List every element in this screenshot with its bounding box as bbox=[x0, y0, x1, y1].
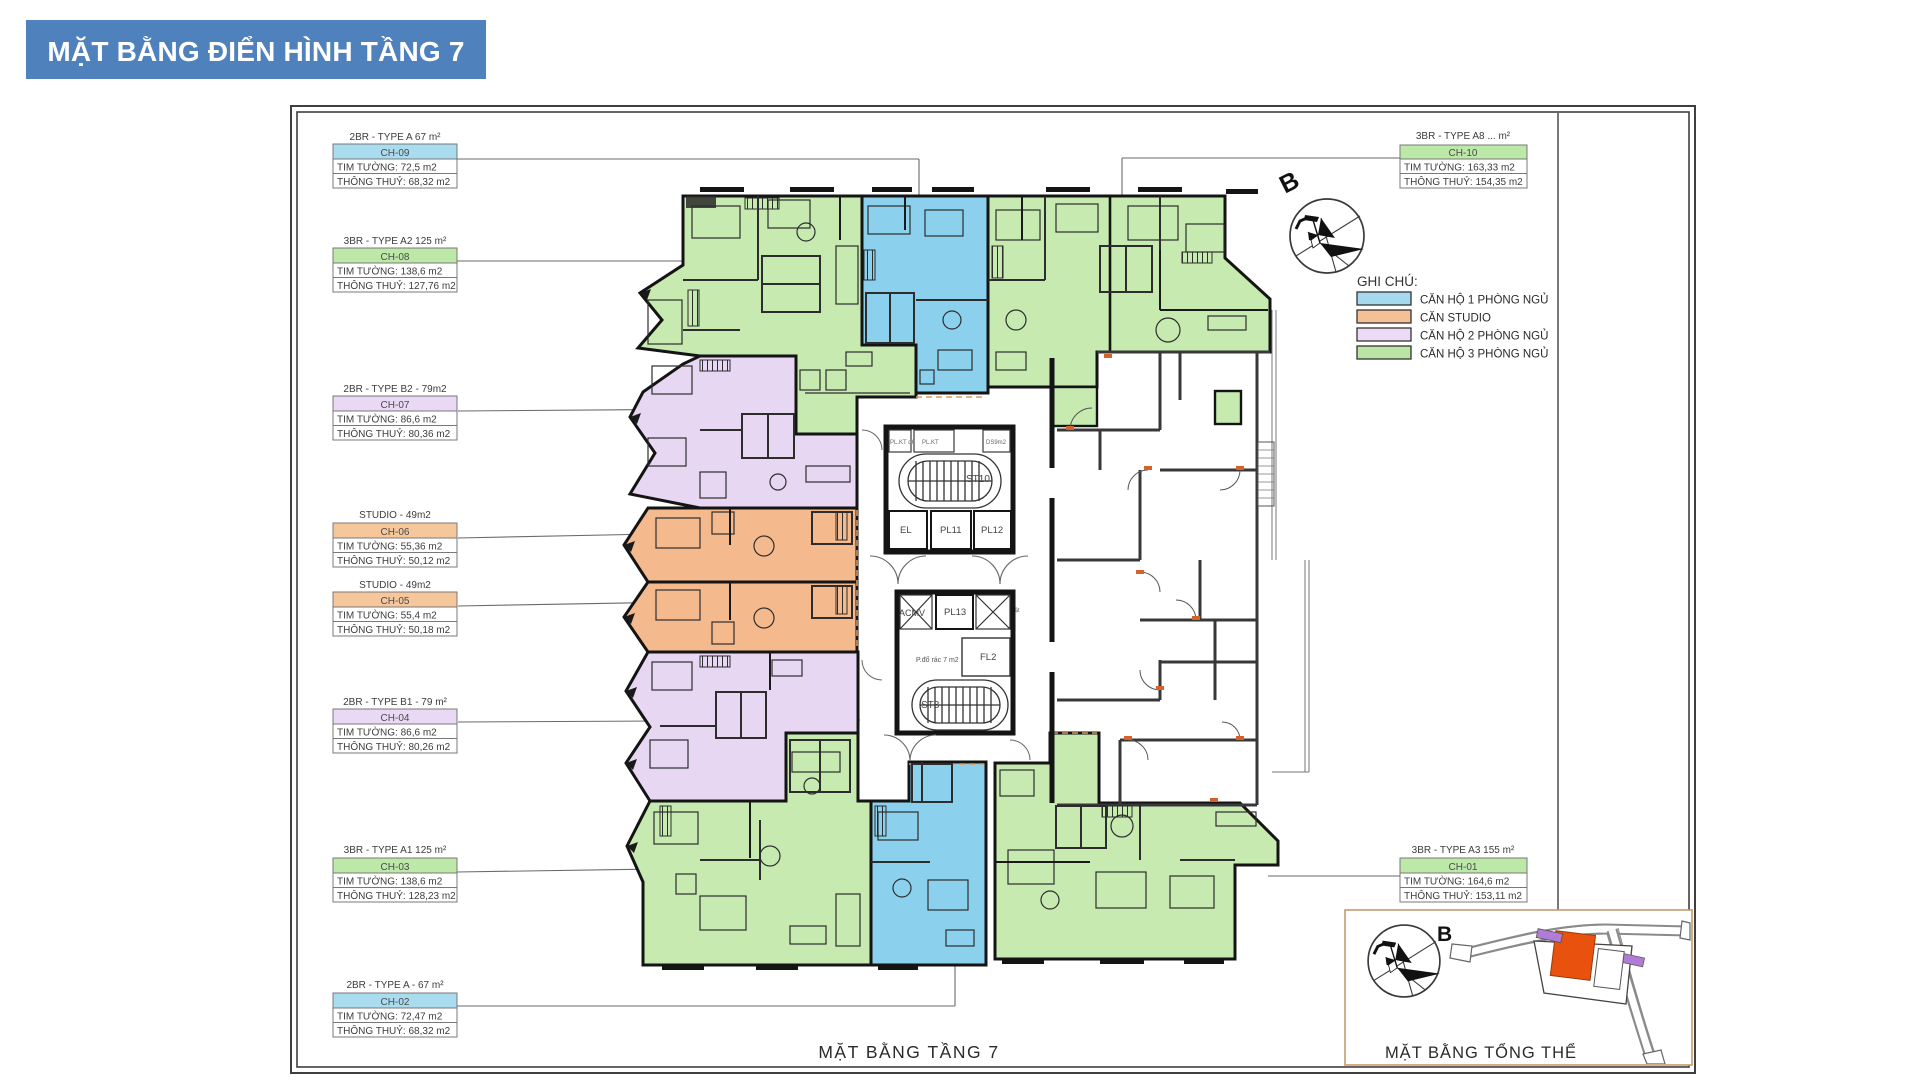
svg-text:TIM TƯỜNG: 138,6 m2: TIM TƯỜNG: 138,6 m2 bbox=[337, 265, 443, 278]
svg-text:PL11: PL11 bbox=[940, 525, 961, 536]
svg-text:3BR - TYPE A8 ... m²: 3BR - TYPE A8 ... m² bbox=[1416, 131, 1511, 142]
svg-text:PL.KT: PL.KT bbox=[922, 440, 939, 446]
svg-text:THÔNG THUỶ: 127,76 m2: THÔNG THUỶ: 127,76 m2 bbox=[337, 279, 456, 292]
svg-text:PL13: PL13 bbox=[944, 607, 966, 618]
svg-text:CH-09: CH-09 bbox=[381, 148, 410, 159]
svg-text:CH-05: CH-05 bbox=[381, 596, 410, 607]
svg-text:THÔNG THUỶ: 80,26 m2: THÔNG THUỶ: 80,26 m2 bbox=[337, 740, 451, 753]
svg-text:THÔNG THUỶ: 153,11 m2: THÔNG THUỶ: 153,11 m2 bbox=[1404, 889, 1522, 902]
svg-text:2BR - TYPE A - 67 m²: 2BR - TYPE A - 67 m² bbox=[346, 980, 444, 991]
svg-text:CH-04: CH-04 bbox=[381, 713, 410, 724]
svg-text:TIM TƯỜNG: 86,6 m2: TIM TƯỜNG: 86,6 m2 bbox=[337, 413, 437, 426]
svg-text:EL: EL bbox=[900, 525, 912, 536]
svg-text:THÔNG THUỶ: 154,35 m2: THÔNG THUỶ: 154,35 m2 bbox=[1404, 175, 1523, 188]
svg-text:ST8: ST8 bbox=[921, 700, 940, 711]
svg-text:GHI CHÚ:: GHI CHÚ: bbox=[1357, 274, 1418, 289]
svg-text:B: B bbox=[1437, 923, 1452, 946]
svg-text:CĂN HỘ 1 PHÒNG NGỦ: CĂN HỘ 1 PHÒNG NGỦ bbox=[1420, 294, 1548, 307]
svg-text:PL.KT d6: PL.KT d6 bbox=[890, 440, 916, 446]
svg-text:2BR - TYPE B1 - 79 m²: 2BR - TYPE B1 - 79 m² bbox=[343, 697, 447, 708]
svg-text:3BR - TYPE A2 125 m²: 3BR - TYPE A2 125 m² bbox=[344, 236, 447, 247]
svg-text:STUDIO - 49m2: STUDIO - 49m2 bbox=[359, 510, 431, 521]
svg-text:THÔNG THUỶ: 50,18 m2: THÔNG THUỶ: 50,18 m2 bbox=[337, 623, 451, 636]
svg-text:2BR - TYPE B2 - 79m2: 2BR - TYPE B2 - 79m2 bbox=[343, 384, 447, 395]
svg-text:CĂN HỘ 3 PHÒNG NGỦ: CĂN HỘ 3 PHÒNG NGỦ bbox=[1420, 348, 1548, 361]
svg-text:CH-07: CH-07 bbox=[381, 400, 410, 411]
svg-text:THÔNG THUỶ: 50,12 m2: THÔNG THUỶ: 50,12 m2 bbox=[337, 554, 451, 567]
svg-text:PL12: PL12 bbox=[981, 525, 1003, 536]
svg-text:MẶT BẰNG TỔNG THỂ: MẶT BẰNG TỔNG THỂ bbox=[1385, 1043, 1577, 1062]
svg-text:CH-03: CH-03 bbox=[381, 862, 410, 873]
svg-text:3BR - TYPE A1 125 m²: 3BR - TYPE A1 125 m² bbox=[344, 845, 447, 856]
svg-text:P.đổ rác 7 m2: P.đổ rác 7 m2 bbox=[916, 656, 959, 664]
svg-text:CĂN HỘ 2 PHÒNG NGỦ: CĂN HỘ 2 PHÒNG NGỦ bbox=[1420, 330, 1548, 343]
svg-text:THÔNG THUỶ: 128,23 m2: THÔNG THUỶ: 128,23 m2 bbox=[337, 889, 456, 902]
svg-text:2BR - TYPE A 67 m²: 2BR - TYPE A 67 m² bbox=[350, 132, 442, 143]
svg-text:THÔNG THUỶ: 80,36 m2: THÔNG THUỶ: 80,36 m2 bbox=[337, 427, 451, 440]
svg-text:3BR - TYPE A3 155 m²: 3BR - TYPE A3 155 m² bbox=[1412, 845, 1515, 856]
svg-text:CH-06: CH-06 bbox=[381, 527, 410, 538]
svg-text:TIM TƯỜNG: 55,4 m2: TIM TƯỜNG: 55,4 m2 bbox=[337, 609, 437, 622]
svg-text:TIM TƯỜNG: 86,6 m2: TIM TƯỜNG: 86,6 m2 bbox=[337, 726, 437, 739]
svg-text:ACMV: ACMV bbox=[899, 608, 925, 618]
svg-text:ST10: ST10 bbox=[966, 474, 990, 485]
svg-text:THÔNG THUỶ: 68,32 m2: THÔNG THUỶ: 68,32 m2 bbox=[337, 1024, 451, 1037]
svg-text:TIM TƯỜNG: 138,6 m2: TIM TƯỜNG: 138,6 m2 bbox=[337, 875, 443, 888]
svg-text:TIM TƯỜNG: 164,6 m2: TIM TƯỜNG: 164,6 m2 bbox=[1404, 875, 1510, 888]
svg-text:CH-08: CH-08 bbox=[381, 252, 410, 263]
svg-text:TIM TƯỜNG: 72,5 m2: TIM TƯỜNG: 72,5 m2 bbox=[337, 161, 437, 174]
svg-text:CH-01: CH-01 bbox=[1449, 862, 1478, 873]
svg-text:MẶT BẰNG ĐIỂN HÌNH TẦNG 7: MẶT BẰNG ĐIỂN HÌNH TẦNG 7 bbox=[47, 36, 464, 67]
svg-text:CĂN STUDIO: CĂN STUDIO bbox=[1420, 312, 1491, 325]
svg-text:CH-10: CH-10 bbox=[1449, 148, 1478, 159]
svg-text:TIM TƯỜNG: 55,36 m2: TIM TƯỜNG: 55,36 m2 bbox=[337, 540, 443, 553]
svg-text:TIM TƯỜNG: 163,33 m2: TIM TƯỜNG: 163,33 m2 bbox=[1404, 161, 1515, 174]
svg-text:CH-02: CH-02 bbox=[381, 997, 410, 1008]
svg-text:TIM TƯỜNG: 72,47 m2: TIM TƯỜNG: 72,47 m2 bbox=[337, 1010, 443, 1023]
svg-text:DS9m2: DS9m2 bbox=[986, 440, 1007, 446]
svg-text:STUDIO - 49m2: STUDIO - 49m2 bbox=[359, 580, 431, 591]
svg-text:FL2: FL2 bbox=[980, 652, 996, 663]
svg-text:THÔNG THUỶ: 68,32 m2: THÔNG THUỶ: 68,32 m2 bbox=[337, 175, 451, 188]
svg-text:MẶT BẰNG TẦNG 7: MẶT BẰNG TẦNG 7 bbox=[818, 1041, 999, 1062]
